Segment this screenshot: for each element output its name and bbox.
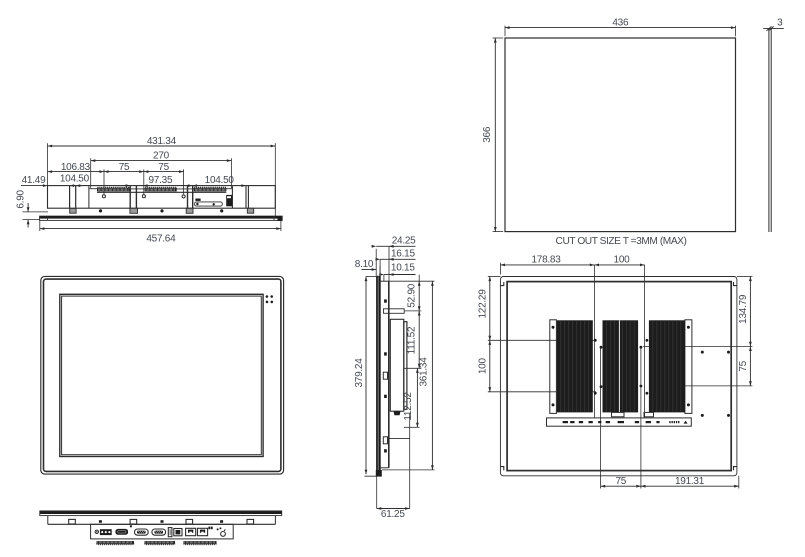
svg-text:104.50: 104.50 — [60, 174, 90, 185]
svg-text:16.15: 16.15 — [391, 249, 415, 260]
svg-text:8.10: 8.10 — [355, 259, 374, 270]
svg-text:191.31: 191.31 — [675, 476, 705, 487]
svg-text:178.83: 178.83 — [531, 255, 561, 266]
svg-text:75: 75 — [615, 476, 626, 487]
svg-text:270: 270 — [153, 151, 170, 162]
svg-text:24.25: 24.25 — [392, 236, 416, 247]
svg-text:366: 366 — [482, 126, 493, 143]
svg-text:75: 75 — [158, 162, 169, 173]
svg-text:41.49: 41.49 — [22, 175, 46, 186]
svg-text:361.34: 361.34 — [418, 357, 429, 387]
svg-text:52.90: 52.90 — [407, 283, 418, 307]
svg-text:3: 3 — [777, 18, 783, 29]
svg-text:75: 75 — [738, 360, 749, 371]
svg-text:6.90: 6.90 — [16, 189, 27, 208]
svg-text:379.24: 379.24 — [354, 358, 365, 388]
svg-text:111.52: 111.52 — [407, 326, 418, 354]
svg-text:75: 75 — [119, 162, 130, 173]
svg-text:436: 436 — [612, 17, 629, 28]
svg-text:100: 100 — [614, 255, 631, 266]
svg-text:431.34: 431.34 — [147, 136, 177, 147]
svg-text:CUT OUT SIZE T =3MM (MAX): CUT OUT SIZE T =3MM (MAX) — [556, 236, 687, 247]
svg-text:122.29: 122.29 — [477, 289, 488, 319]
svg-text:457.64: 457.64 — [146, 233, 176, 244]
svg-text:104.50: 104.50 — [205, 175, 235, 186]
svg-text:97.35: 97.35 — [149, 175, 173, 186]
svg-text:112.52: 112.52 — [403, 392, 414, 421]
svg-text:10.15: 10.15 — [391, 263, 415, 274]
svg-text:134.79: 134.79 — [738, 294, 749, 324]
svg-text:106.83: 106.83 — [61, 162, 91, 173]
svg-text:100: 100 — [477, 358, 488, 375]
svg-text:61.25: 61.25 — [381, 509, 405, 520]
